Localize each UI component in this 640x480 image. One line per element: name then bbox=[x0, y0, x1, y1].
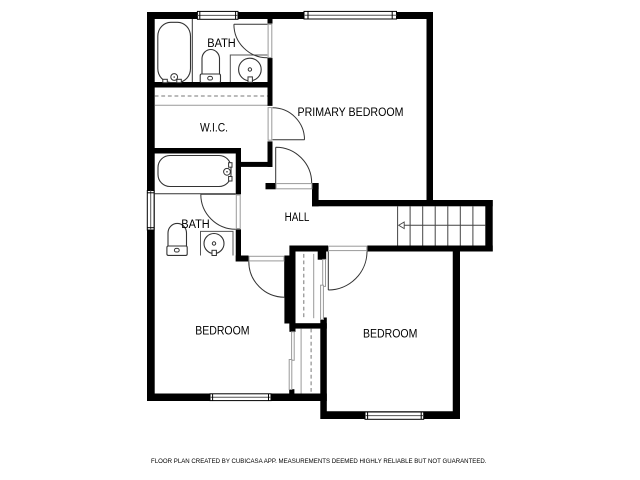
svg-text:HALL: HALL bbox=[285, 210, 310, 224]
svg-text:FLOOR PLAN CREATED BY CUBICASA: FLOOR PLAN CREATED BY CUBICASA APP. MEAS… bbox=[151, 458, 487, 465]
svg-text:PRIMARY BEDROOM: PRIMARY BEDROOM bbox=[298, 105, 404, 119]
svg-text:BATH: BATH bbox=[207, 36, 236, 50]
svg-text:W.I.C.: W.I.C. bbox=[200, 121, 228, 135]
svg-text:BEDROOM: BEDROOM bbox=[195, 323, 249, 337]
svg-text:BEDROOM: BEDROOM bbox=[363, 326, 417, 340]
svg-text:BATH: BATH bbox=[181, 217, 210, 231]
